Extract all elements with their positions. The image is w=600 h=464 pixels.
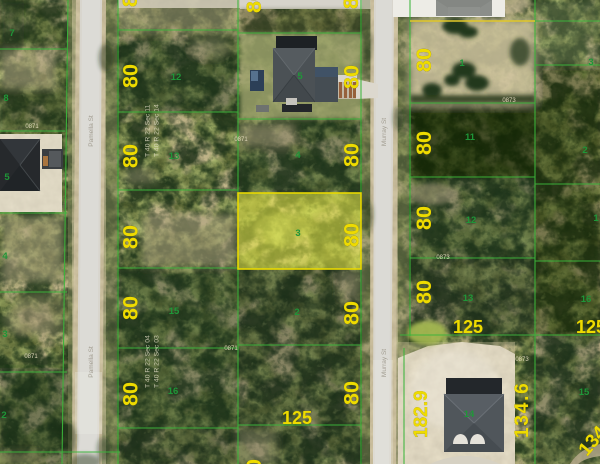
svg-text:12: 12 (171, 72, 182, 83)
svg-text:12: 12 (466, 215, 477, 226)
svg-text:Murray St: Murray St (381, 349, 388, 377)
svg-text:13: 13 (463, 293, 474, 304)
svg-text:T 40 R 22 Sec 04: T 40 R 22 Sec 04 (145, 335, 152, 388)
svg-text:2: 2 (582, 145, 587, 156)
svg-text:11: 11 (465, 132, 476, 143)
svg-text:T 40 R 22 Sec 14: T 40 R 22 Sec 14 (154, 104, 161, 157)
svg-text:80: 80 (412, 131, 436, 155)
svg-text:80: 80 (339, 0, 363, 9)
svg-text:0873: 0873 (436, 255, 450, 261)
svg-text:0871: 0871 (25, 124, 39, 130)
svg-text:125: 125 (453, 317, 483, 337)
svg-text:80: 80 (340, 223, 364, 247)
svg-text:0873: 0873 (502, 98, 516, 104)
svg-text:80: 80 (412, 206, 436, 230)
svg-text:16: 16 (581, 294, 592, 305)
svg-text:14: 14 (464, 409, 475, 420)
svg-text:T 40 R 22 Sec 11: T 40 R 22 Sec 11 (145, 105, 152, 157)
svg-text:2: 2 (1, 410, 6, 421)
svg-text:1: 1 (459, 58, 465, 69)
svg-text:4: 4 (2, 251, 8, 262)
svg-text:80: 80 (340, 301, 364, 325)
svg-text:80: 80 (340, 65, 364, 89)
svg-text:0873: 0873 (515, 357, 529, 363)
svg-text:80: 80 (119, 225, 143, 249)
svg-text:125: 125 (576, 317, 600, 337)
svg-text:1: 1 (593, 213, 599, 224)
svg-text:0871: 0871 (24, 354, 38, 360)
svg-text:3: 3 (588, 57, 593, 68)
svg-text:80: 80 (340, 381, 364, 405)
svg-text:2: 2 (294, 307, 299, 318)
svg-text:15: 15 (169, 306, 180, 317)
svg-text:T 40 R 22 Sec 03: T 40 R 22 Sec 03 (154, 335, 161, 388)
svg-text:Pamella St: Pamella St (88, 115, 95, 147)
svg-text:15: 15 (579, 387, 590, 398)
svg-text:80: 80 (242, 459, 266, 464)
svg-text:3: 3 (295, 228, 300, 239)
svg-text:134.6: 134.6 (512, 381, 533, 438)
svg-text:Murray St: Murray St (381, 118, 388, 146)
svg-text:80: 80 (340, 143, 364, 167)
svg-text:0871: 0871 (234, 137, 248, 143)
svg-text:80: 80 (412, 48, 436, 72)
svg-text:13: 13 (169, 151, 180, 162)
svg-text:8: 8 (3, 93, 8, 104)
svg-text:80: 80 (119, 382, 143, 406)
svg-text:125: 125 (282, 408, 312, 428)
svg-text:16: 16 (168, 386, 179, 397)
svg-text:5: 5 (4, 172, 10, 183)
svg-text:5: 5 (297, 71, 303, 82)
svg-text:0871: 0871 (224, 346, 238, 352)
svg-text:80: 80 (119, 64, 143, 88)
svg-text:80: 80 (119, 296, 143, 320)
svg-text:182.9: 182.9 (411, 390, 432, 438)
svg-text:3: 3 (2, 329, 7, 340)
svg-text:80: 80 (119, 144, 143, 168)
svg-text:4: 4 (295, 150, 301, 161)
svg-text:80: 80 (242, 0, 266, 13)
svg-text:80: 80 (118, 0, 142, 7)
svg-text:80: 80 (412, 280, 436, 304)
svg-text:Pamella St: Pamella St (88, 346, 95, 378)
svg-text:7: 7 (9, 28, 14, 39)
